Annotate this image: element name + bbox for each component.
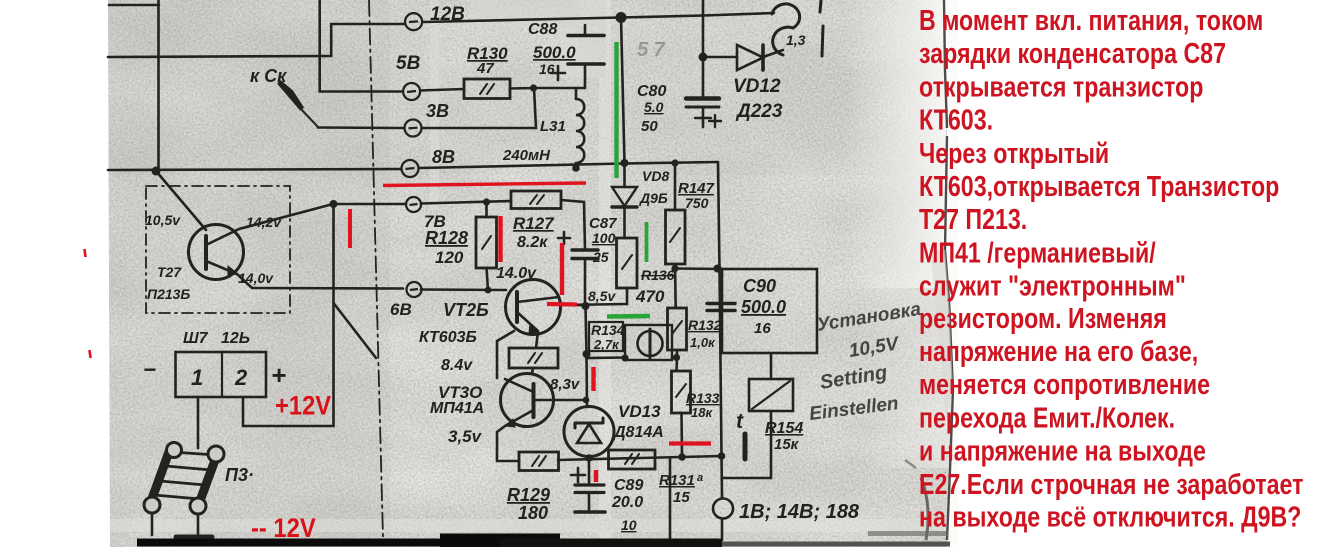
svg-text:С80: С80 (637, 83, 666, 100)
svg-text:3,5v: 3,5v (448, 427, 483, 446)
svg-text:VT2Б: VT2Б (443, 300, 489, 320)
svg-text:КТ603,открывается Транзистор: КТ603,открывается Транзистор (919, 169, 1279, 202)
svg-text:14,2v: 14,2v (246, 214, 282, 230)
svg-text:10: 10 (621, 517, 637, 533)
svg-text:16: 16 (539, 61, 555, 77)
svg-text:Д223: Д223 (735, 101, 783, 122)
svg-text:1В; 14В; 188: 1В; 14В; 188 (739, 501, 860, 523)
svg-text:20.0: 20.0 (611, 494, 643, 511)
svg-text:1: 1 (191, 365, 203, 390)
svg-text:R132: R132 (688, 317, 722, 333)
svg-text:−: − (143, 357, 156, 382)
svg-text:к Ск: к Ск (250, 66, 287, 86)
svg-text:Д814А: Д814А (612, 424, 664, 441)
svg-text:12Ь: 12Ь (221, 330, 250, 347)
svg-text:10,5v: 10,5v (145, 212, 181, 228)
svg-text:100: 100 (592, 230, 616, 246)
svg-text:t: t (736, 410, 744, 433)
svg-text:Ш7: Ш7 (183, 330, 209, 347)
svg-text:R154: R154 (765, 420, 803, 437)
svg-text:а: а (697, 472, 703, 484)
svg-text:5.0: 5.0 (644, 99, 664, 115)
svg-text:8.4v: 8.4v (441, 357, 473, 374)
svg-text:16: 16 (754, 320, 771, 337)
svg-text:С90: С90 (743, 276, 776, 296)
svg-text:зарядки конденсатора С87: зарядки конденсатора С87 (919, 37, 1226, 70)
svg-text:14,0v: 14,0v (238, 270, 274, 286)
svg-text:КТ603.: КТ603. (919, 103, 993, 136)
svg-text:R134: R134 (591, 322, 625, 338)
svg-text:120: 120 (435, 248, 464, 267)
svg-text:25: 25 (592, 249, 609, 265)
svg-text:Через открытый: Через открытый (919, 136, 1109, 169)
svg-text:500.0: 500.0 (741, 297, 786, 317)
svg-text:МП41 /германиевый/: МП41 /германиевый/ (919, 236, 1156, 269)
svg-text:47: 47 (476, 60, 494, 77)
svg-text:Д9Б: Д9Б (639, 190, 668, 206)
svg-text:+: + (271, 360, 286, 390)
svg-text:R136: R136 (641, 267, 675, 283)
svg-text:С88: С88 (528, 21, 557, 38)
svg-text:открывается транзистор: открывается транзистор (919, 70, 1203, 103)
svg-text:и напряжение на выходе: и напряжение на выходе (919, 434, 1206, 467)
svg-text:1,0к: 1,0к (690, 335, 716, 350)
svg-text:6В: 6В (390, 300, 412, 319)
svg-text:на выходе всё отключится. Д9В?: на выходе всё отключится. Д9В? (919, 500, 1301, 533)
svg-text:КТ603Б: КТ603Б (419, 329, 477, 346)
svg-text:8В: 8В (432, 147, 455, 167)
svg-text:18к: 18к (691, 405, 713, 420)
svg-text:Т27: Т27 (157, 264, 182, 280)
svg-text:VD12: VD12 (733, 76, 781, 97)
svg-text:R129: R129 (507, 485, 550, 505)
svg-text:С89: С89 (614, 477, 643, 494)
svg-text:14.0v: 14.0v (496, 265, 537, 282)
svg-text:240мН: 240мН (502, 147, 551, 164)
svg-text:VD13: VD13 (618, 402, 661, 421)
svg-text:Е27.Если строчная не заработае: Е27.Если строчная не заработает (919, 467, 1304, 500)
svg-text:8,3v: 8,3v (550, 376, 581, 393)
svg-text:3В: 3В (426, 101, 449, 121)
svg-text:перехода Емит./Колек.: перехода Емит./Колек. (919, 401, 1175, 434)
svg-text:МП41А: МП41А (430, 400, 484, 417)
svg-text:служит "электронным": служит "электронным" (919, 269, 1186, 302)
svg-text:R127: R127 (513, 214, 555, 233)
svg-text:R133: R133 (686, 390, 720, 406)
svg-text:5В: 5В (396, 53, 421, 74)
svg-text:R131: R131 (659, 472, 695, 489)
svg-text:2,7к: 2,7к (593, 337, 620, 352)
svg-text:50: 50 (641, 118, 658, 135)
svg-text:470: 470 (635, 287, 665, 306)
svg-text:П213Б: П213Б (147, 286, 190, 302)
svg-text:8,5v: 8,5v (588, 288, 616, 304)
svg-text:напряжение на его базе,: напряжение на его базе, (919, 334, 1198, 367)
svg-text:1,3: 1,3 (786, 32, 806, 48)
svg-text:500.0: 500.0 (533, 43, 576, 62)
svg-text:+12V: +12V (275, 391, 331, 421)
svg-text:5 7: 5 7 (637, 39, 666, 61)
svg-text:750: 750 (685, 195, 709, 211)
svg-text:8.2к: 8.2к (517, 234, 548, 251)
svg-text:Т27 П213.: Т27 П213. (919, 203, 1027, 236)
svg-text:меняется сопротивление: меняется сопротивление (919, 368, 1210, 401)
svg-text:резистором. Изменяя: резистором. Изменяя (919, 301, 1167, 334)
svg-text:15: 15 (673, 489, 690, 506)
svg-text:L31: L31 (540, 118, 566, 135)
svg-text:П3·: П3· (225, 465, 254, 485)
svg-text:180: 180 (518, 503, 548, 523)
svg-text:12В: 12В (430, 4, 465, 25)
svg-text:2: 2 (234, 365, 248, 390)
svg-text:VD8: VD8 (642, 168, 669, 184)
svg-text:R128: R128 (425, 228, 468, 248)
svg-text:В момент вкл. питания, током: В момент вкл. питания, током (919, 3, 1263, 36)
svg-text:15к: 15к (774, 436, 800, 453)
